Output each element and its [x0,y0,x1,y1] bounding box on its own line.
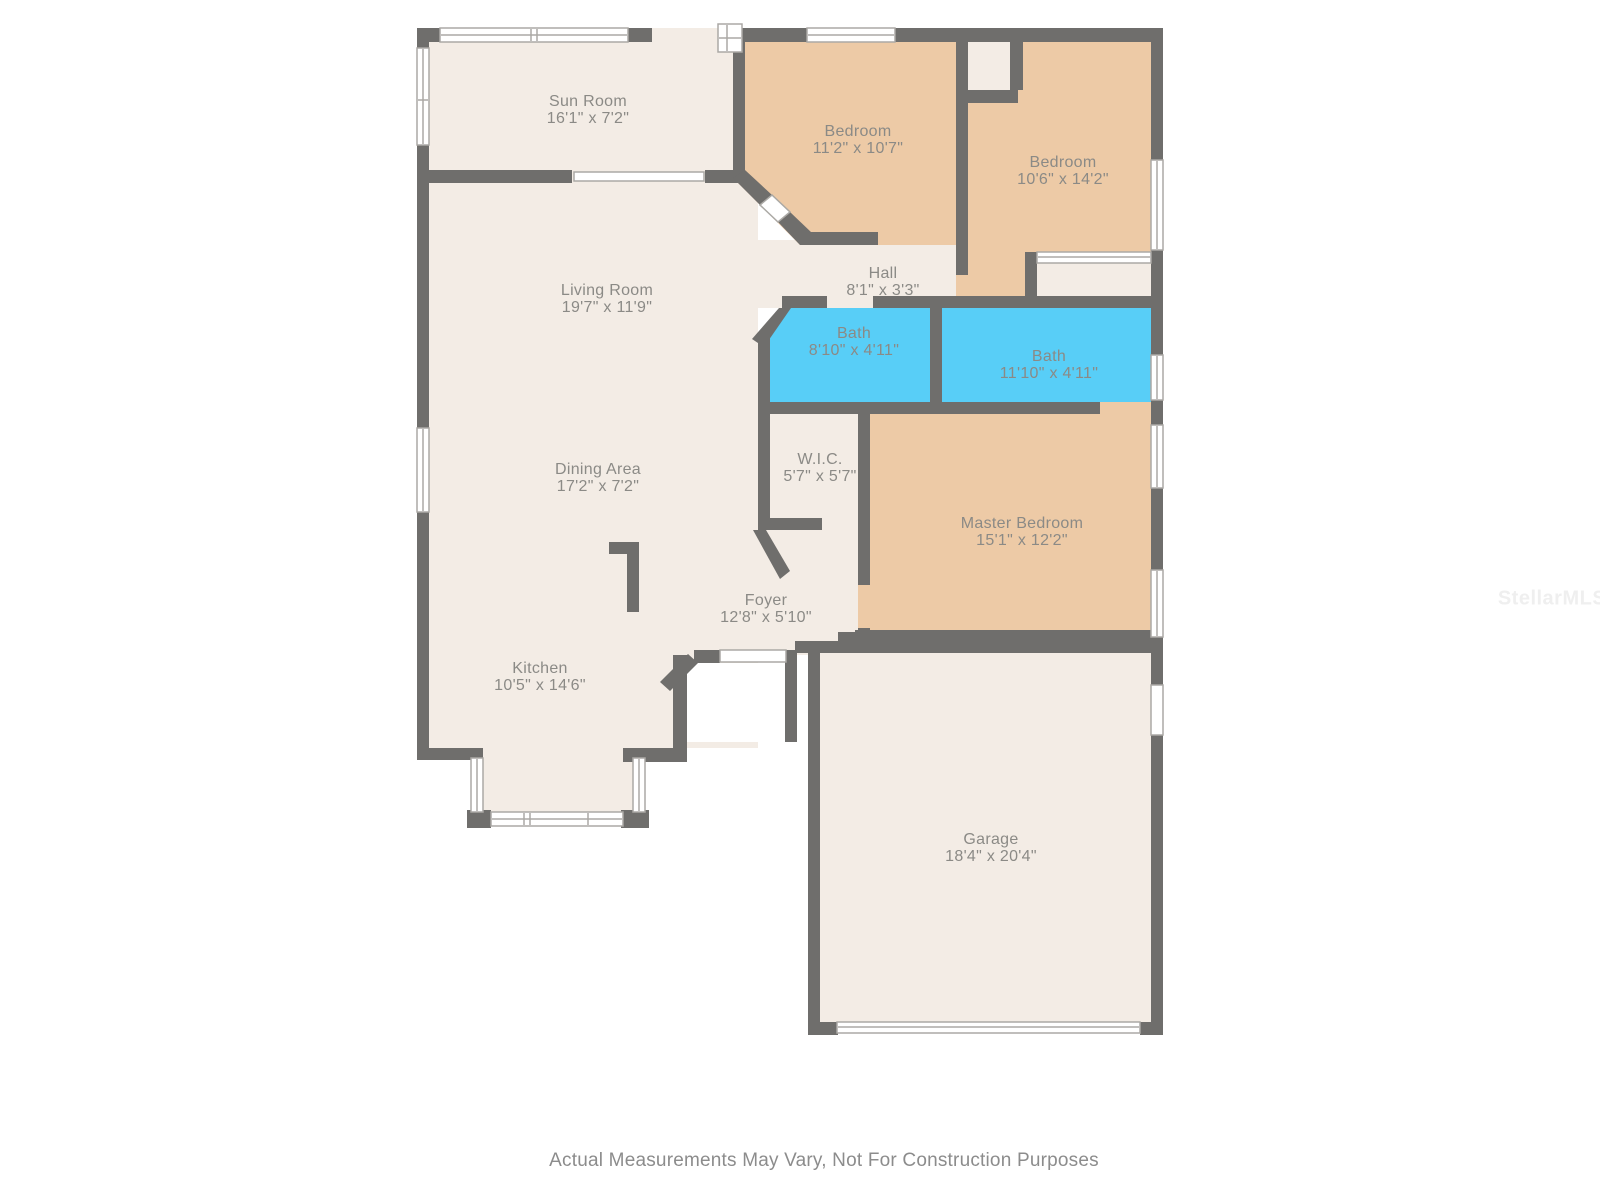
floor-plan-page: Sun Room 16'1" x 7'2" Bedroom 11'2" x 10… [0,0,1600,1200]
wall-segment [417,28,440,42]
wall-segment [795,641,1163,653]
wall-segment [1151,28,1163,160]
room-fill-bedroom-1 [733,42,956,245]
footer-disclaimer: Actual Measurements May Vary, Not For Co… [549,1150,1099,1172]
room-fill-topwall-gap [650,28,720,42]
room-fill-garage [820,653,1151,1025]
room-fill-closet-top [1030,258,1151,300]
wall-segment [1151,400,1163,425]
wall-segment [808,653,820,1035]
wall-segment [1151,488,1163,570]
front-door [720,650,786,662]
wall-segment [758,414,770,518]
wall-segment [956,42,968,97]
room-fill-foyer [640,510,858,655]
wall-segment [758,402,1100,414]
porch-area [687,663,785,742]
wall-segment [758,518,822,530]
opening-threshold [574,172,704,181]
wall-segment [628,28,652,42]
wall-segment [758,334,770,407]
wall-segment [627,542,639,612]
bath-fills [758,308,1151,402]
wall-segment [1140,1022,1163,1035]
wall-segment [1151,735,1163,1035]
wall-segment [417,42,429,748]
wall-segment [742,28,807,42]
wall-segment [800,232,878,245]
room-fill-sun-room [417,28,745,183]
garage-service-door [1151,685,1163,735]
stellar-mls-watermark: StellarMLS [1498,588,1600,611]
wall-segment [808,1022,838,1035]
wall-segment [895,28,1163,42]
wall-segment [930,308,942,402]
wall-segment [858,402,870,585]
wall-segment [956,103,968,275]
wall-segment [782,296,827,308]
room-fill-master-bedroom [858,402,1151,642]
room-fill-bath-1 [758,308,930,402]
wall-segment [855,630,1163,642]
wall-segment [930,296,1163,308]
wall-segment [1010,42,1023,90]
wall-segment [733,42,745,178]
wall-segment [694,650,720,663]
floor-plan-drawing [0,0,1600,1200]
wall-segment [785,650,797,742]
wall-segment [956,90,1018,103]
room-fill-kitchen-bay [483,748,633,815]
room-fill-bath-2 [942,308,1151,402]
wall-segment [417,170,572,183]
wall-segment [873,296,930,308]
